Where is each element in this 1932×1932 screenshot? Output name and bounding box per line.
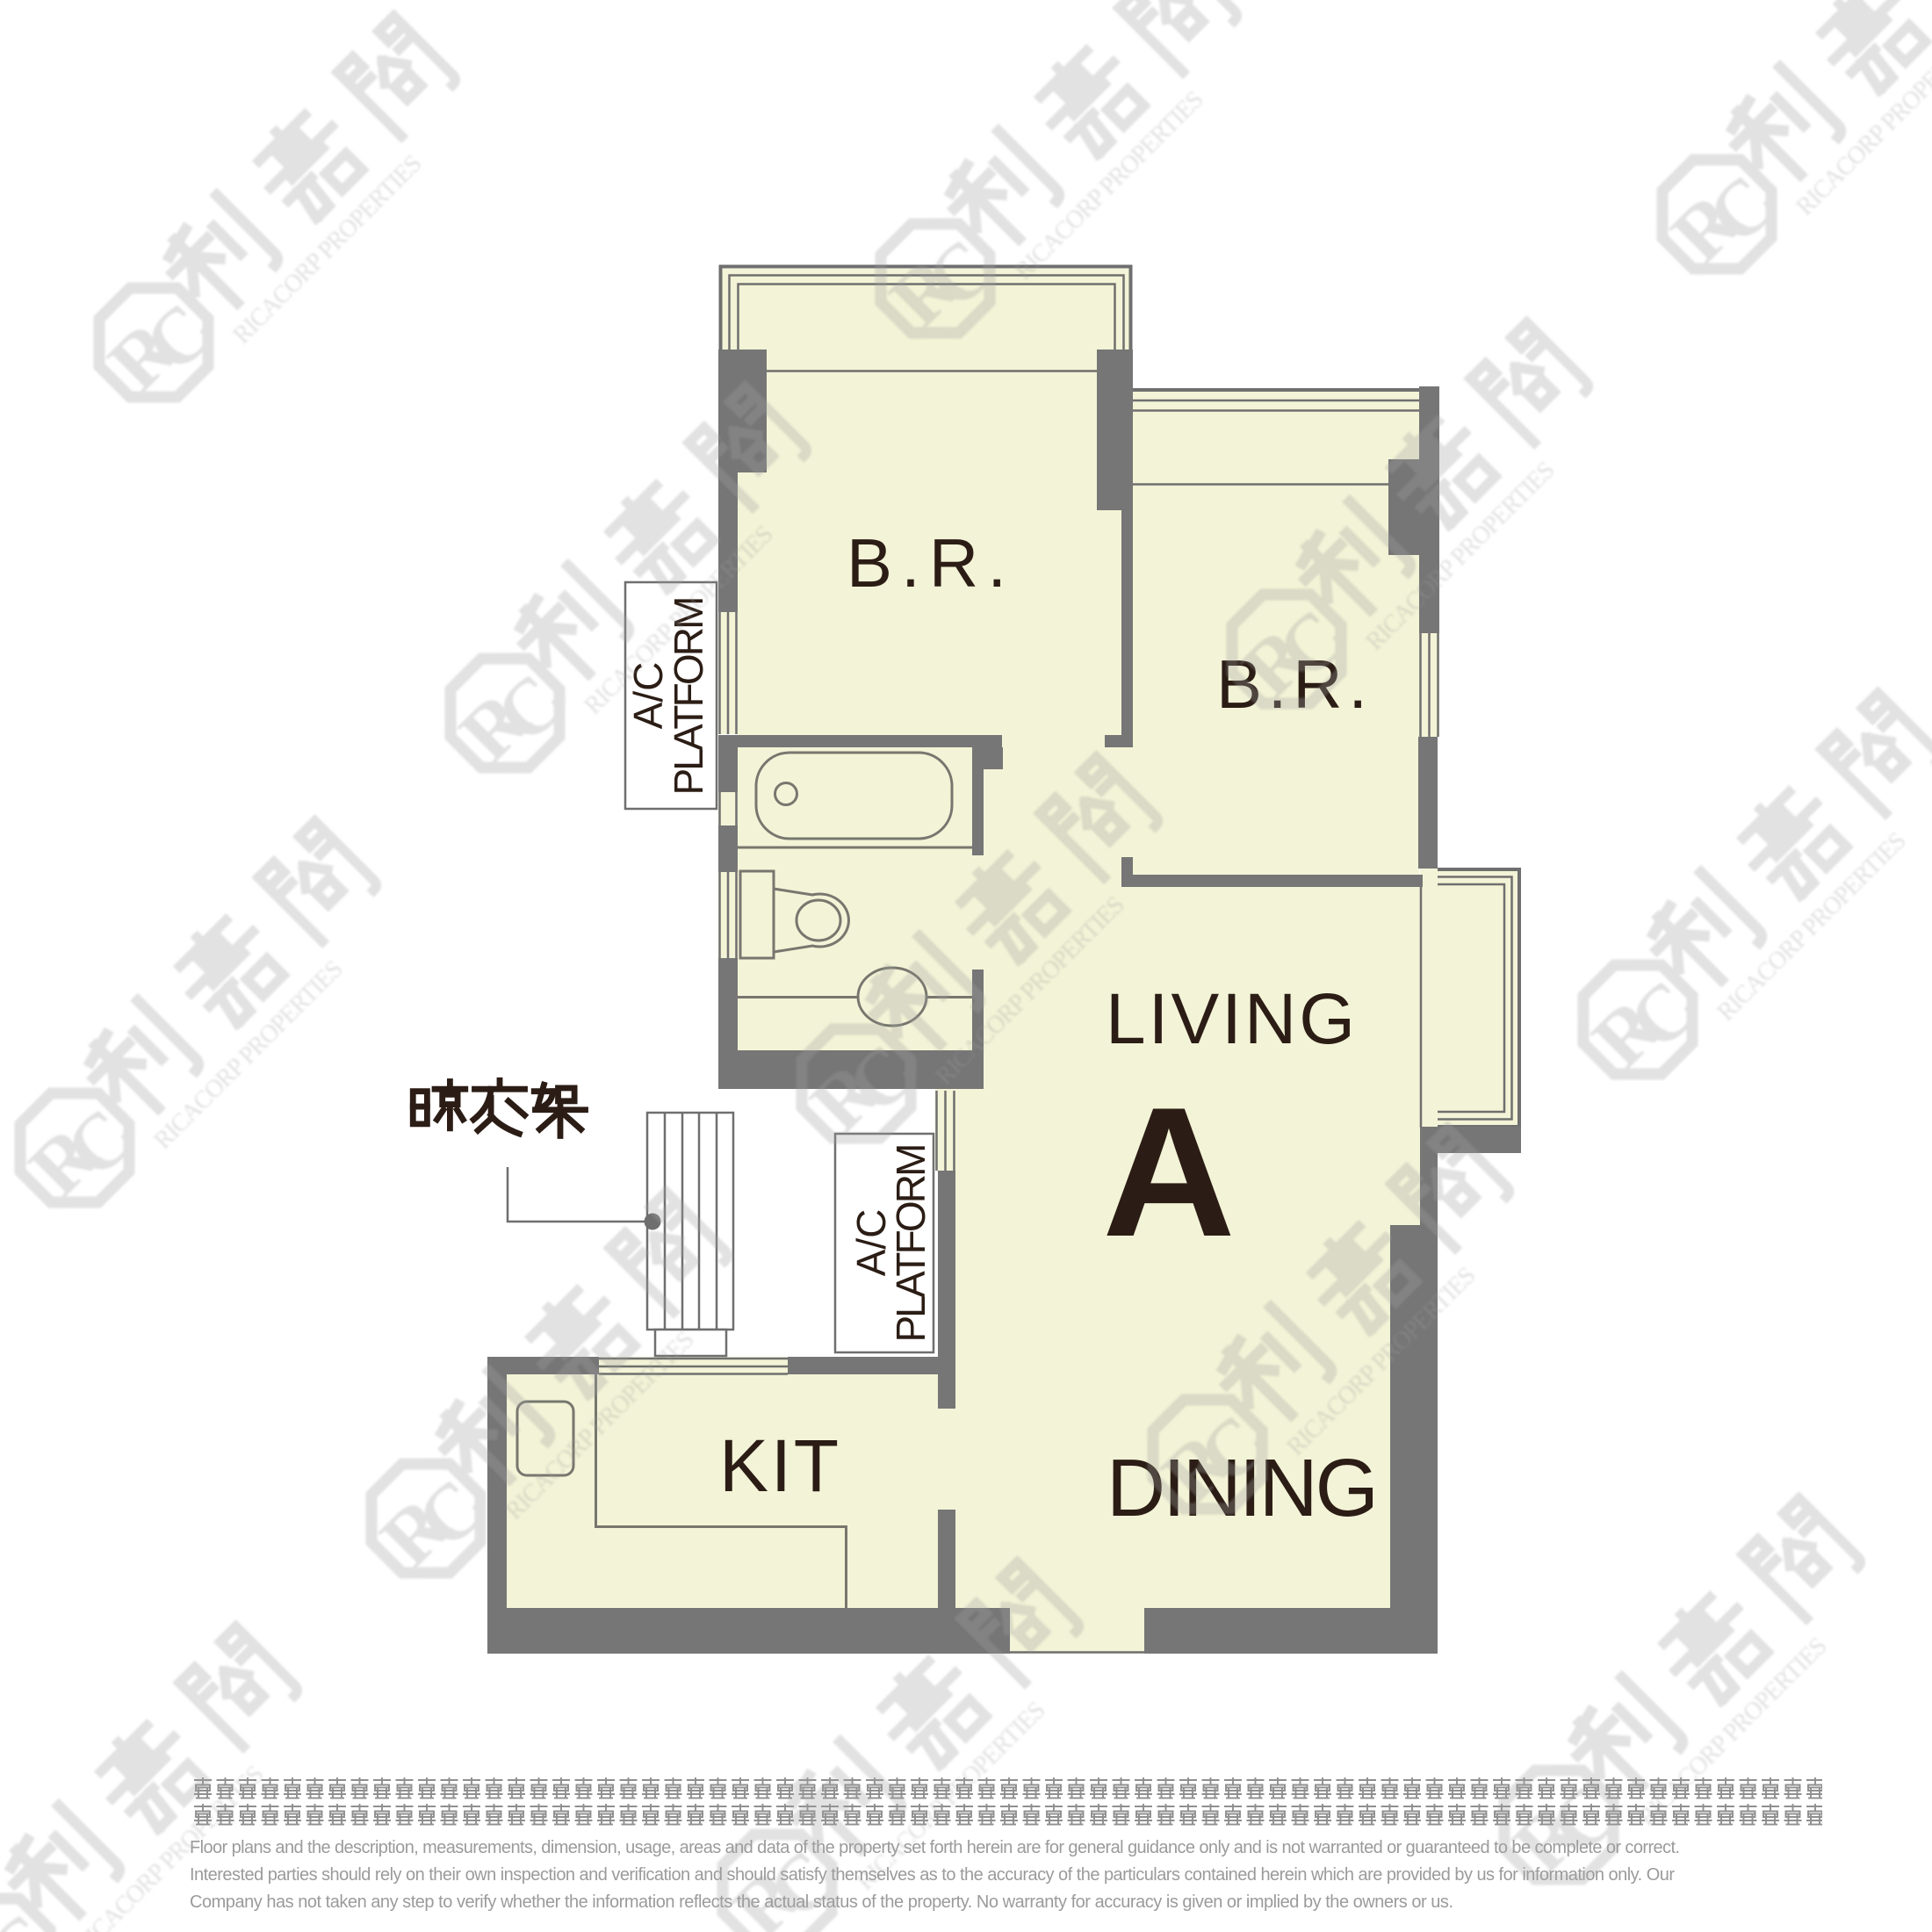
svg-text:PLATFORM: PLATFORM (888, 1143, 934, 1343)
svg-text:A: A (1102, 1069, 1236, 1275)
svg-text:LIVING: LIVING (1106, 979, 1355, 1059)
svg-text:Interested parties should rely: Interested parties should rely on their … (190, 1865, 1675, 1885)
svg-text:KIT: KIT (719, 1424, 839, 1507)
svg-text:Floor plans and the descriptio: Floor plans and the description, measure… (190, 1838, 1680, 1857)
